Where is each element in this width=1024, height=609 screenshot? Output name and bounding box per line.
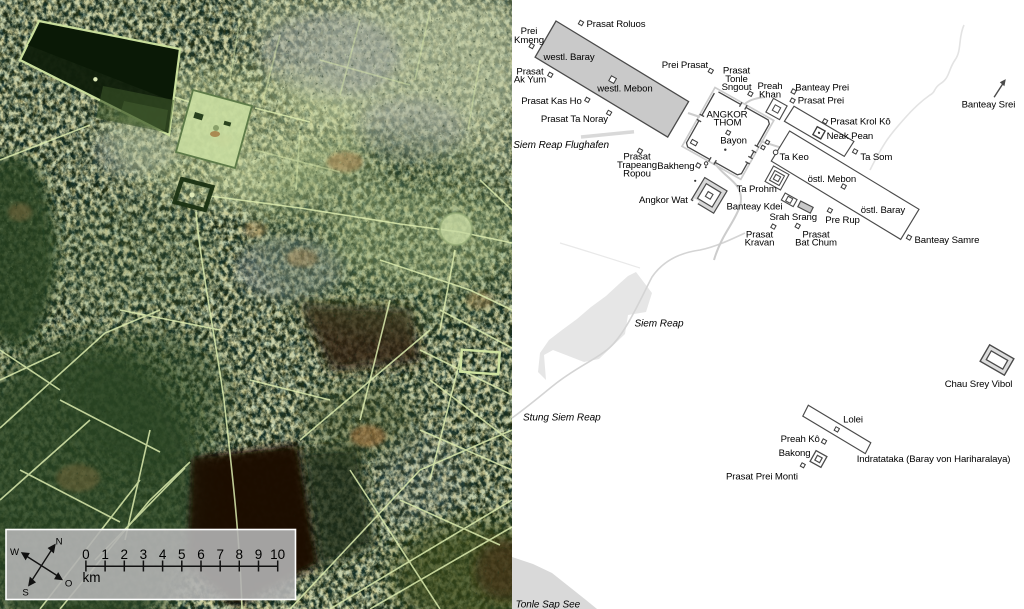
svg-text:Pre Rup: Pre Rup [825,215,860,226]
svg-text:westl. Mebon: westl. Mebon [596,84,652,95]
svg-text:Bayon: Bayon [720,135,747,146]
svg-text:Indratataka (Baray von Harihar: Indratataka (Baray von Hariharalaya) [857,454,1011,465]
svg-text:Angkor Wat: Angkor Wat [639,195,688,206]
svg-text:Neak Pean: Neak Pean [827,131,874,142]
svg-text:8: 8 [236,547,244,562]
svg-text:9: 9 [255,547,263,562]
svg-text:O: O [65,579,72,590]
svg-text:Preah Kô: Preah Kô [781,434,820,445]
svg-text:Ak Yum: Ak Yum [514,75,546,86]
svg-text:Lolei: Lolei [843,415,863,426]
svg-text:1: 1 [101,547,109,562]
svg-text:Siem Reap Flughafen: Siem Reap Flughafen [513,140,609,151]
svg-text:Siem Reap: Siem Reap [635,318,685,329]
svg-text:5: 5 [178,547,186,562]
svg-text:N: N [56,537,63,548]
svg-text:0: 0 [82,547,90,562]
svg-text:Stung Siem Reap: Stung Siem Reap [523,413,601,424]
svg-text:Tonle Sap See: Tonle Sap See [516,599,581,609]
svg-text:Prasat Roluos: Prasat Roluos [587,19,646,30]
svg-text:Prasat Ta Noray: Prasat Ta Noray [541,114,608,125]
svg-text:4: 4 [159,547,167,562]
svg-text:THOM: THOM [714,118,742,129]
svg-text:S: S [22,588,28,599]
svg-text:Sngout: Sngout [722,82,752,93]
svg-text:Banteay Prei: Banteay Prei [795,82,849,93]
svg-text:Prasat Prei Monti: Prasat Prei Monti [726,472,798,483]
svg-text:Banteay Kdei: Banteay Kdei [727,201,783,212]
svg-text:6: 6 [197,547,205,562]
svg-text:westl. Baray: westl. Baray [543,52,595,63]
svg-text:7: 7 [216,547,224,562]
svg-text:Khan: Khan [759,90,781,101]
svg-text:Bat Chum: Bat Chum [795,238,837,249]
svg-text:3: 3 [140,547,148,562]
svg-text:Kmeng: Kmeng [514,35,544,46]
svg-text:Ropou: Ropou [623,168,651,179]
svg-text:Ta Som: Ta Som [860,152,892,163]
svg-text:Bakheng: Bakheng [657,161,694,172]
svg-text:Srah Srang: Srah Srang [770,212,818,223]
svg-text:östl. Mebon: östl. Mebon [808,174,857,185]
svg-text:östl. Baray: östl. Baray [861,205,906,216]
svg-text:Ta Prohm: Ta Prohm [737,184,777,195]
svg-text:Prasat Prei: Prasat Prei [798,96,844,107]
svg-text:Chau Srey Vibol: Chau Srey Vibol [945,379,1013,390]
svg-text:2: 2 [121,547,129,562]
svg-text:W: W [10,547,20,558]
svg-text:Banteay Samre: Banteay Samre [915,235,980,246]
svg-text:Prasat Kas Ho: Prasat Kas Ho [521,96,582,107]
svg-text:10: 10 [270,547,285,562]
svg-text:Ta Keo: Ta Keo [780,152,809,163]
svg-text:Bakong: Bakong [779,448,811,459]
svg-text:Prasat Krol Kô: Prasat Krol Kô [830,116,890,127]
svg-text:Banteay Srei: Banteay Srei [962,99,1016,110]
svg-text:Prei Prasat: Prei Prasat [662,60,709,71]
svg-text:Kravan: Kravan [745,238,775,249]
svg-text:km: km [83,570,101,585]
